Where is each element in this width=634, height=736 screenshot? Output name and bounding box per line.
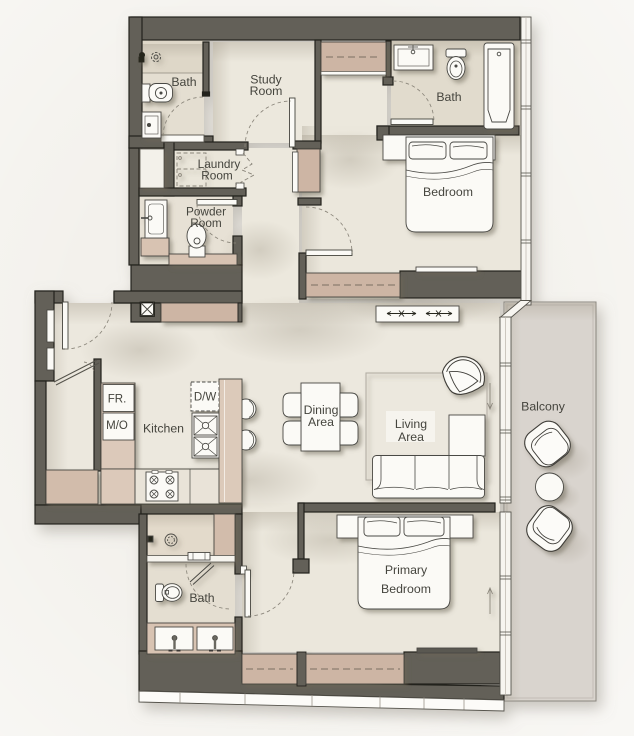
svg-text:Kitchen: Kitchen	[143, 422, 184, 436]
svg-text:Area: Area	[398, 430, 424, 444]
svg-text:Room: Room	[250, 84, 283, 98]
svg-text:Room: Room	[201, 169, 233, 183]
svg-text:Balcony: Balcony	[521, 400, 566, 414]
svg-text:Primary: Primary	[385, 563, 428, 577]
svg-text:Area: Area	[308, 415, 334, 429]
svg-text:Room: Room	[190, 216, 222, 230]
svg-text:M/O: M/O	[106, 420, 128, 432]
svg-text:FR.: FR.	[108, 394, 127, 406]
svg-text:Living: Living	[395, 417, 427, 431]
svg-text:Bath: Bath	[436, 90, 461, 104]
svg-text:Bedroom: Bedroom	[423, 185, 473, 199]
svg-text:Bath: Bath	[171, 75, 196, 89]
svg-text:Bath: Bath	[189, 591, 214, 605]
svg-text:D/W: D/W	[194, 392, 217, 404]
svg-text:Bedroom: Bedroom	[381, 582, 431, 596]
